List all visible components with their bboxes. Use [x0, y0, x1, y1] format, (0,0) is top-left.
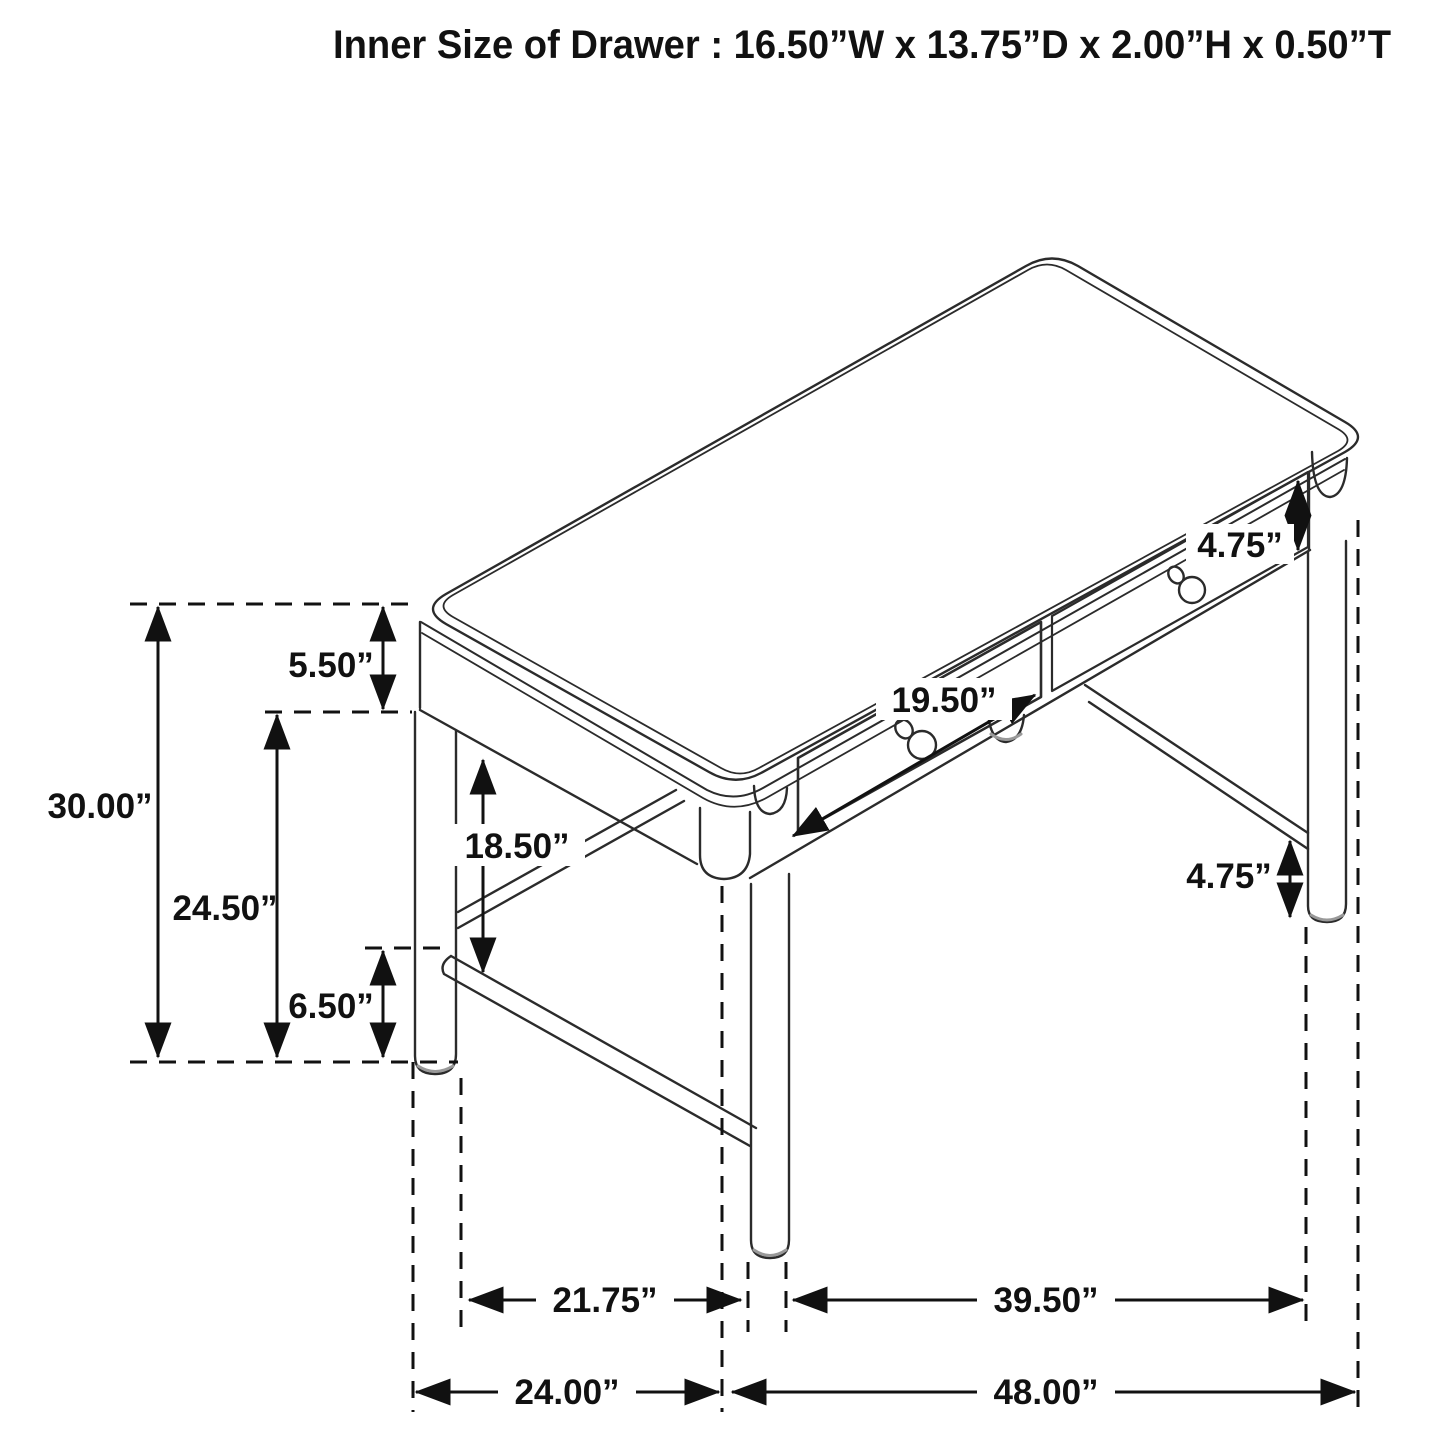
right-drawer-knob-stem	[1165, 564, 1187, 587]
dim-label-side-leg-span: 21.75”	[552, 1281, 657, 1320]
dim-label-apron-drop: 5.50”	[288, 646, 374, 685]
dim-label-drawer-width: 19.50”	[891, 681, 996, 720]
apron-top-seam	[422, 470, 1344, 807]
drawer-right	[1052, 472, 1308, 691]
labels: Inner Size of Drawer : 16.50”W x 13.75”D…	[47, 23, 1391, 1412]
lower-left-stretcher	[443, 956, 756, 1146]
front-left-leg	[751, 874, 789, 1258]
dim-label-overall-width: 48.00”	[993, 1373, 1098, 1412]
dim-label-leg-bottom-height: 4.75”	[1186, 857, 1272, 896]
apron-corner-band	[700, 808, 750, 879]
rear-left-leg	[415, 712, 456, 1074]
dim-label-knee-clearance: 18.50”	[464, 827, 569, 866]
right-side-stretcher	[1085, 685, 1308, 849]
desk-dimension-diagram: Inner Size of Drawer : 16.50”W x 13.75”D…	[0, 0, 1445, 1445]
dim-label-front-leg-span: 39.50”	[993, 1281, 1098, 1320]
dim-label-clearance-height: 24.50”	[172, 889, 277, 928]
desktop-slab-edge	[421, 459, 1345, 797]
desk-illustration	[415, 259, 1358, 1259]
diagram-title: Inner Size of Drawer : 16.50”W x 13.75”D…	[333, 23, 1391, 67]
left-drawer-knob-stem	[892, 716, 917, 742]
dim-label-overall-height: 30.00”	[47, 787, 152, 826]
dim-label-right-apron-height: 4.75”	[1197, 526, 1283, 565]
dim-label-stretcher-height: 6.50”	[288, 987, 374, 1026]
right-front-leg	[1308, 541, 1346, 922]
dimension-diagram-page: Inner Size of Drawer : 16.50”W x 13.75”D…	[0, 0, 1445, 1445]
dim-label-overall-depth: 24.00”	[514, 1373, 619, 1412]
front-apron-bottom-edge	[750, 550, 1310, 878]
